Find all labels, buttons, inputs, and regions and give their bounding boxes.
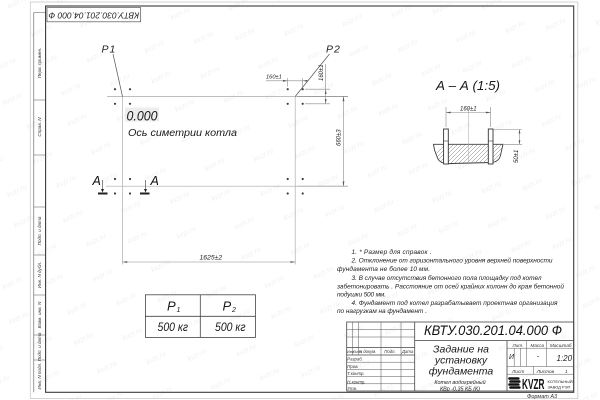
svg-text:KVZR: KVZR (522, 377, 545, 393)
svg-text:Лист: Лист (511, 369, 524, 375)
svg-text:Утв.: Утв. (347, 386, 357, 391)
svg-text:P1: P1 (102, 44, 117, 56)
svg-text:1625±2: 1625±2 (200, 255, 223, 262)
svg-text:Перв. примен.: Перв. примен. (37, 48, 42, 79)
svg-text:Инв. N дубл.: Инв. N дубл. (37, 262, 42, 289)
svg-text:500 кг: 500 кг (215, 320, 246, 334)
svg-text:подушки 500 мм.: подушки 500 мм. (337, 291, 386, 299)
svg-text:А: А (150, 174, 159, 188)
svg-text:P2: P2 (326, 44, 341, 56)
svg-text:фундамента не более 10 мм.: фундамента не более 10 мм. (337, 265, 430, 273)
svg-text:1. * Размер для справок .: 1. * Размер для справок . (352, 248, 432, 256)
svg-text:0.000: 0.000 (127, 107, 158, 123)
svg-text:660±3: 660±3 (336, 129, 342, 146)
svg-text:Подп. и дата: Подп. и дата (37, 332, 42, 361)
svg-text:ЗАВОД РЭП: ЗАВОД РЭП (548, 385, 571, 390)
svg-text:Формат А3: Формат А3 (527, 394, 558, 400)
svg-text:1:20: 1:20 (557, 354, 573, 363)
svg-text:Масса: Масса (531, 343, 545, 348)
svg-text:Разраб.: Разраб. (347, 357, 363, 362)
svg-text:1: 1 (565, 369, 568, 375)
svg-text:Подп.: Подп. (384, 349, 395, 354)
svg-text:Н.контр.: Н.контр. (347, 379, 365, 384)
svg-text:КОТЕЛЬНЫЙ: КОТЕЛЬНЫЙ (548, 379, 573, 384)
svg-text:160±1: 160±1 (319, 64, 325, 81)
svg-text:4. Фундамент под котел разраба: 4. Фундамент под котел разрабатывает про… (352, 299, 559, 307)
svg-text:160±1: 160±1 (460, 107, 477, 113)
svg-text:Дата: Дата (401, 349, 414, 354)
svg-text:А – А (1:5): А – А (1:5) (435, 78, 500, 93)
svg-text:N докум.: N докум. (359, 349, 376, 354)
svg-text:2. Отклонение от горизонтально: 2. Отклонение от горизонтального уровня … (351, 257, 553, 265)
svg-text:КВр -0,35 КБ (К): КВр -0,35 КБ (К) (440, 387, 480, 393)
svg-text:Справ. N: Справ. N (37, 117, 42, 137)
svg-text:забетонировать . Расстояние от: забетонировать . Расстояние от осей край… (336, 282, 564, 290)
svg-text:Лит.: Лит. (512, 343, 524, 348)
svg-text:Т.контр.: Т.контр. (347, 371, 364, 376)
svg-text:КВТУ.030.201.04.000 Ф: КВТУ.030.201.04.000 Ф (424, 322, 562, 338)
svg-text:Листов: Листов (536, 369, 555, 375)
svg-text:Масштаб: Масштаб (550, 343, 572, 348)
svg-text:КВТУ.030.201.04.000 Ф: КВТУ.030.201.04.000 Ф (48, 10, 139, 20)
svg-text:по нагрузкам на фундамент .: по нагрузкам на фундамент . (337, 307, 427, 315)
svg-text:2: 2 (231, 307, 236, 314)
svg-text:фундамента: фундамента (429, 366, 494, 378)
svg-text:Инв. N подл.: Инв. N подл. (37, 363, 42, 390)
svg-text:3. В случае отсутствия бетонно: 3. В случае отсутствия бетонного пола пл… (352, 274, 542, 282)
svg-text:Подп. и дата: Подп. и дата (37, 216, 42, 245)
svg-text:Ось симетрии котла: Ось симетрии котла (128, 128, 237, 139)
svg-text:Пров.: Пров. (347, 364, 358, 369)
svg-text:Взам. инв. N: Взам. инв. N (37, 301, 42, 328)
svg-text:160±1: 160±1 (266, 75, 282, 81)
svg-text:А: А (92, 174, 101, 188)
svg-text:1: 1 (177, 307, 181, 314)
svg-text:Р: Р (223, 299, 232, 314)
svg-text:50±1: 50±1 (514, 150, 520, 163)
svg-text:500 кг: 500 кг (158, 320, 189, 334)
svg-text:Р: Р (167, 299, 176, 314)
svg-text:Котел водогрейный: Котел водогрейный (434, 379, 485, 386)
